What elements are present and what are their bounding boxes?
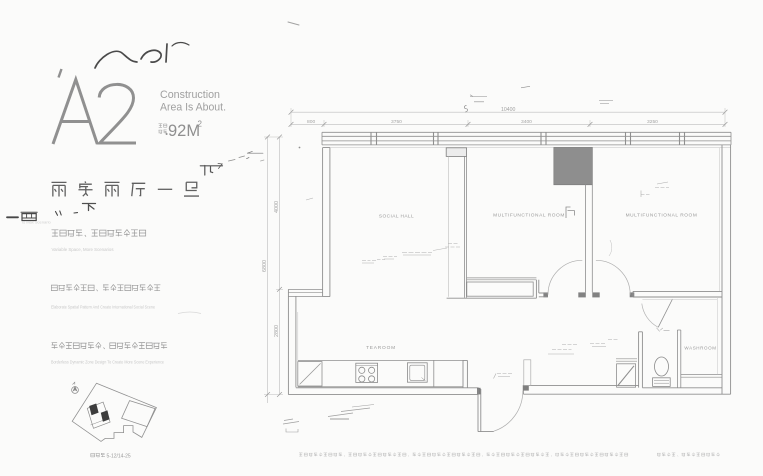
svg-text:MULTIFUNCTIONAL ROOM: MULTIFUNCTIONAL ROOM bbox=[626, 213, 698, 219]
svg-text:6800: 6800 bbox=[262, 260, 268, 272]
svg-text:Area Is About.: Area Is About. bbox=[160, 102, 226, 114]
svg-text:Is Max Scenario: Is Max Scenario bbox=[22, 219, 51, 224]
svg-text:3400: 3400 bbox=[521, 119, 532, 125]
svg-text:Borderless Dynamic Zone Design: Borderless Dynamic Zone Design To Create… bbox=[51, 359, 165, 364]
svg-text:SOCIAL HALL: SOCIAL HALL bbox=[379, 214, 414, 220]
svg-text:TEAROOM: TEAROOM bbox=[366, 345, 396, 351]
svg-text:3750: 3750 bbox=[391, 119, 402, 125]
svg-text:5-12/14-25: 5-12/14-25 bbox=[107, 453, 131, 459]
svg-text:WASHROOM: WASHROOM bbox=[684, 346, 716, 351]
svg-text:4000: 4000 bbox=[274, 201, 280, 213]
svg-text:92M: 92M bbox=[168, 122, 200, 140]
svg-text:MULTIFUNCTIONAL ROOM: MULTIFUNCTIONAL ROOM bbox=[493, 213, 565, 219]
svg-text:2: 2 bbox=[198, 120, 203, 129]
svg-text:Variable Space, More Scenarios: Variable Space, More Scenarios bbox=[52, 247, 115, 252]
svg-text:10400: 10400 bbox=[501, 107, 516, 113]
svg-text:3250: 3250 bbox=[647, 119, 658, 125]
svg-text:800: 800 bbox=[307, 119, 315, 125]
svg-text:Elaborate Spatial Pattern And: Elaborate Spatial Pattern And Create Int… bbox=[51, 304, 156, 309]
svg-text:2800: 2800 bbox=[274, 325, 280, 337]
svg-text:Construction: Construction bbox=[160, 89, 220, 101]
